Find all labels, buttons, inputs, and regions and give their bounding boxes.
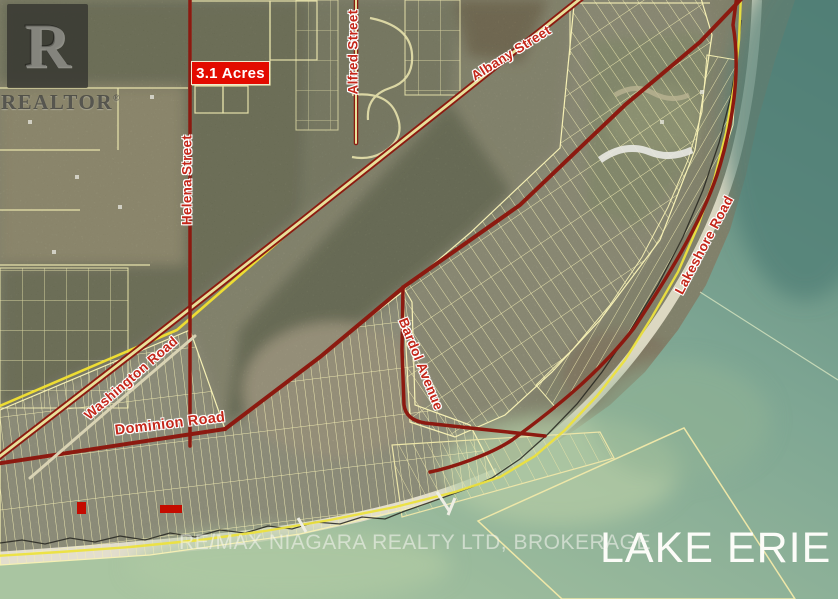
realtor-logo: R (7, 4, 88, 88)
realtor-wordmark-text: REALTOR (1, 90, 113, 114)
listing-map: Helena Street Alfred Street Albany Stree… (0, 0, 838, 599)
street-label-alfred: Alfred Street (346, 10, 361, 95)
brokerage-watermark: RE/MAX NIAGARA REALTY LTD, BROKERAGE (179, 531, 651, 555)
map-canvas (0, 0, 838, 599)
realtor-wordmark: REALTOR® (1, 90, 121, 115)
street-label-helena: Helena Street (180, 135, 195, 225)
acreage-highlight-label: 3.1 Acres (191, 61, 270, 85)
acreage-text: 3.1 Acres (196, 65, 265, 82)
registered-symbol: ® (113, 93, 121, 103)
realtor-logo-letter: R (24, 9, 70, 83)
